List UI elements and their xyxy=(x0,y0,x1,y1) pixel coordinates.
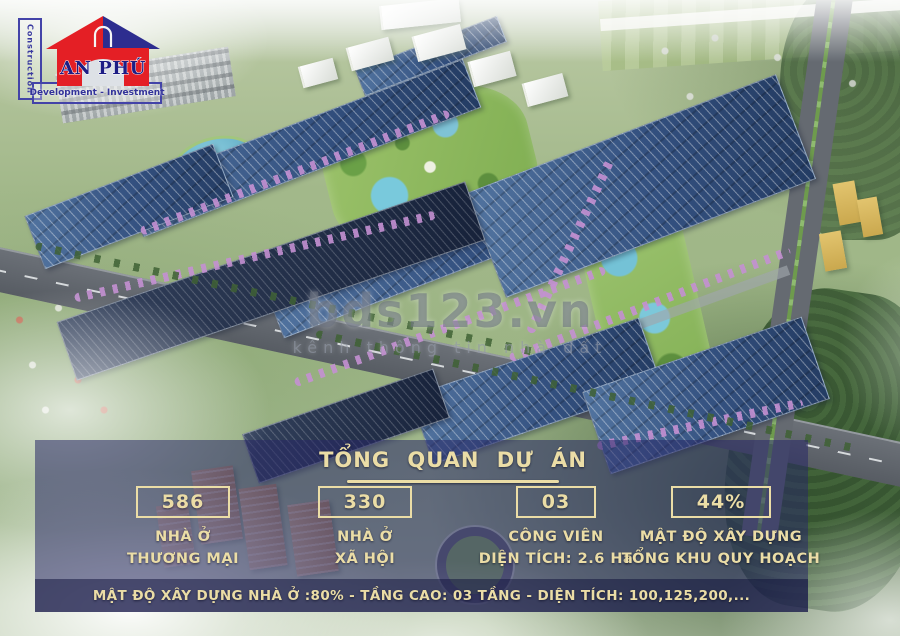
panel-footer-bar: MẬT ĐỘ XÂY DỰNG NHÀ Ở :80% - TẦNG CAO: 0… xyxy=(35,579,808,612)
an-phu-logo: Construction Development - Investment AN… xyxy=(8,6,170,106)
brand-text: AN PHÚ xyxy=(59,56,146,79)
overview-panel: TỔNG QUAN DỰ ÁN 586 NHÀ Ở THƯƠNG MẠI 330… xyxy=(35,440,808,612)
watermark-tagline: kênh thông tin nhà đất xyxy=(293,338,608,357)
footer-text: MẬT ĐỘ XÂY DỰNG NHÀ Ở :80% - TẦNG CAO: 0… xyxy=(93,588,750,604)
stat-label-line2: XÃ HỘI xyxy=(265,548,465,570)
title-underline xyxy=(347,480,559,483)
stat-build-density: 44% MẬT ĐỘ XÂY DỰNG TỔNG KHU QUY HOẠCH xyxy=(621,486,821,571)
stat-value-box: 330 xyxy=(318,486,413,518)
watermark-site: bds123.vn xyxy=(293,284,608,338)
apartment-building xyxy=(298,58,338,89)
stat-label: NHÀ Ở THƯƠNG MẠI xyxy=(83,526,283,571)
stat-value-box: 44% xyxy=(671,486,771,518)
stat-value-box: 586 xyxy=(136,486,231,518)
project-overview-poster: bds123.vn kênh thông tin nhà đất TỔNG QU… xyxy=(0,0,900,636)
house-icon: AN PHÚ xyxy=(44,14,162,88)
mist-cloud xyxy=(840,250,900,450)
stat-commercial-housing: 586 NHÀ Ở THƯƠNG MẠI xyxy=(83,486,283,571)
stat-value: 44% xyxy=(697,491,745,513)
stat-value: 330 xyxy=(344,491,387,513)
panel-title: TỔNG QUAN DỰ ÁN xyxy=(319,448,587,472)
stat-label: NHÀ Ở XÃ HỘI xyxy=(265,526,465,571)
watermark: bds123.vn kênh thông tin nhà đất xyxy=(293,284,608,357)
stat-value: 03 xyxy=(542,491,570,513)
stat-label-line1: NHÀ Ở xyxy=(265,526,465,548)
stat-social-housing: 330 NHÀ Ở XÃ HỘI xyxy=(265,486,465,571)
stat-label-line1: MẬT ĐỘ XÂY DỰNG xyxy=(621,526,821,548)
stat-label-line2: THƯƠNG MẠI xyxy=(83,548,283,570)
stat-value: 586 xyxy=(162,491,205,513)
apartment-building xyxy=(522,73,569,107)
stat-label: MẬT ĐỘ XÂY DỰNG TỔNG KHU QUY HOẠCH xyxy=(621,526,821,571)
stat-label-line1: NHÀ Ở xyxy=(83,526,283,548)
stat-value-box: 03 xyxy=(516,486,596,518)
stat-label-line2: TỔNG KHU QUY HOẠCH xyxy=(621,548,821,570)
